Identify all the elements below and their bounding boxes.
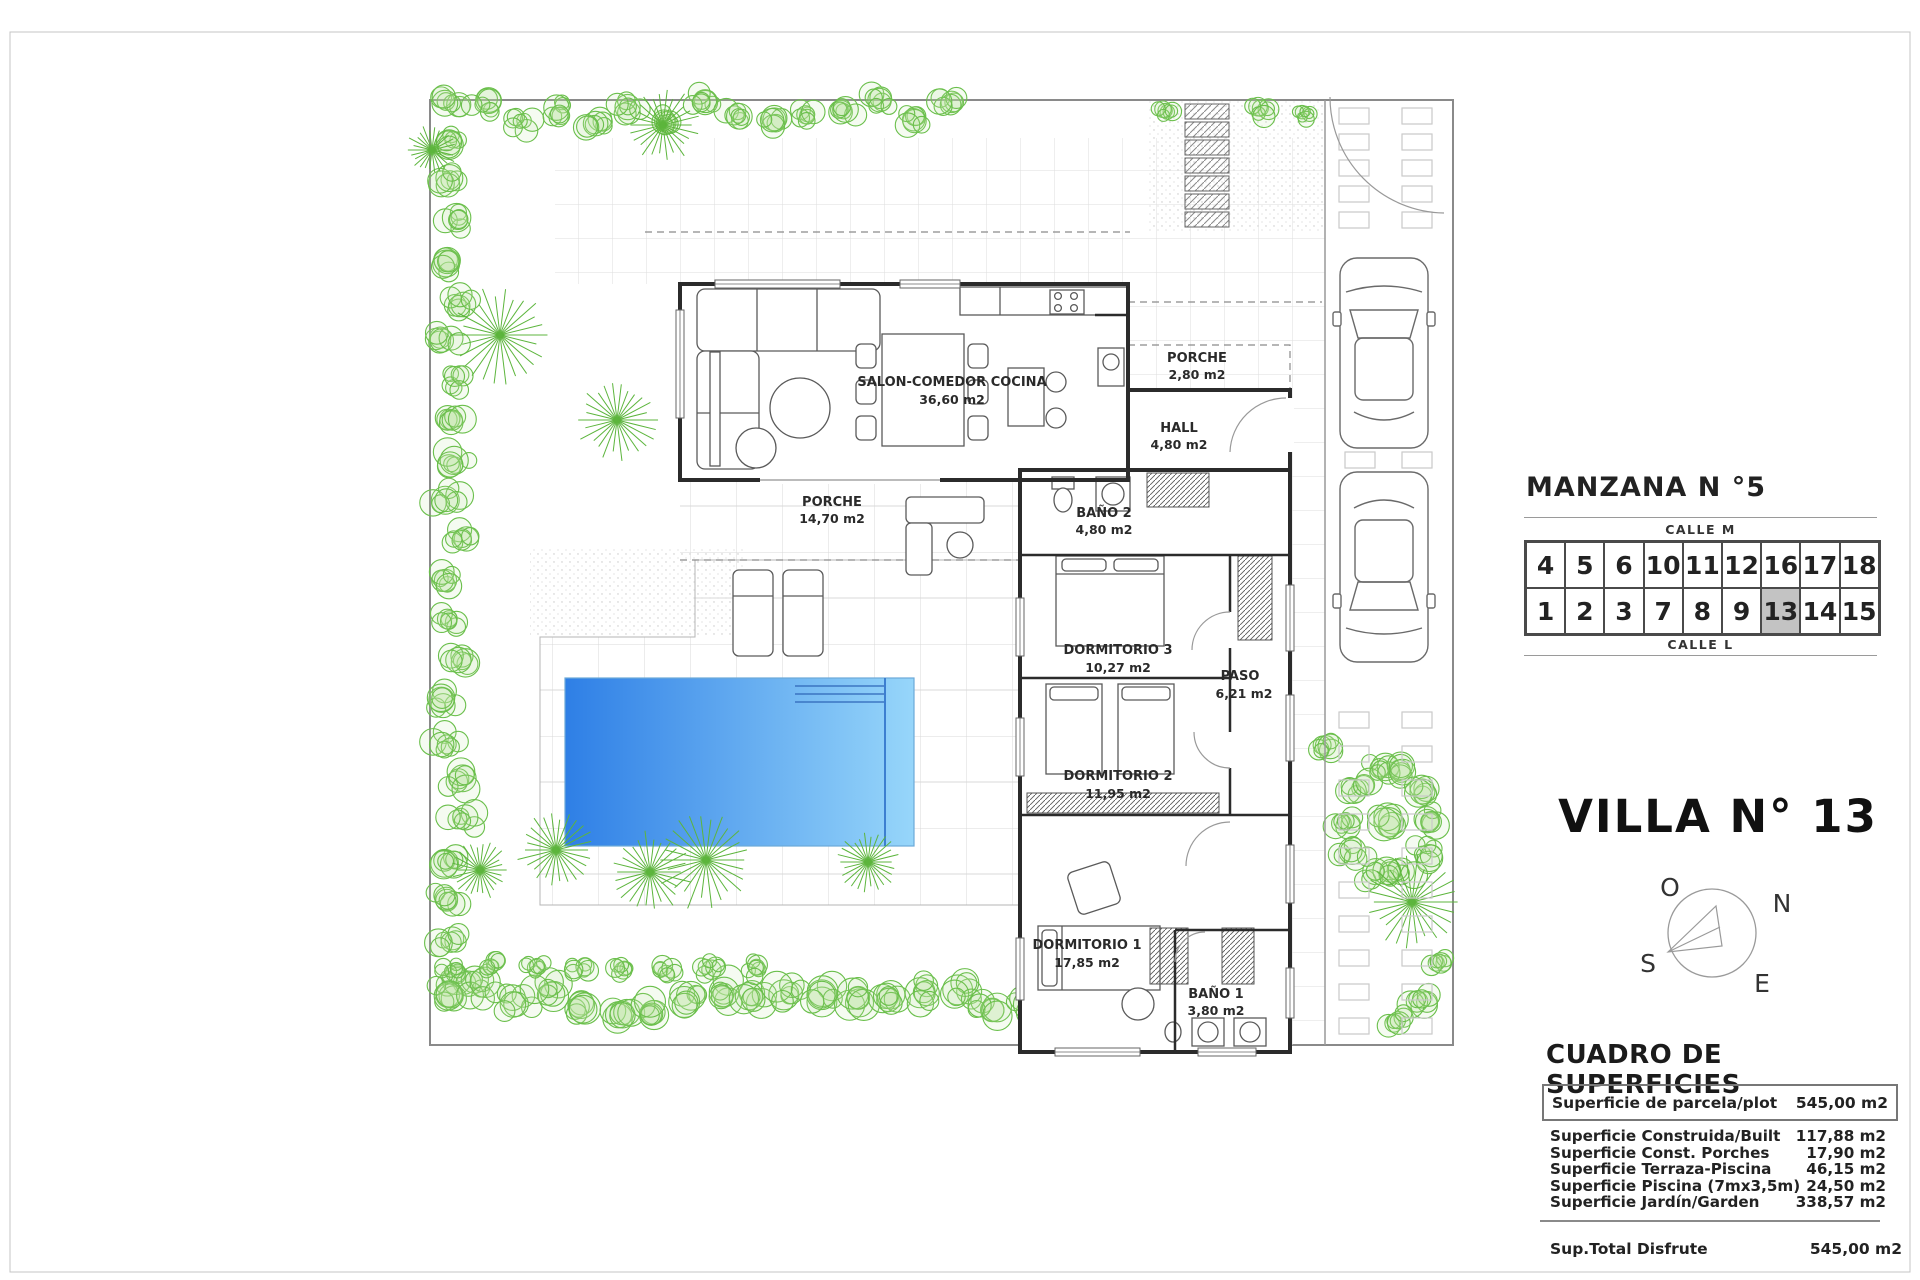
manzana-title: MANZANA N °5	[1526, 472, 1886, 503]
manzana-cell-top: 10	[1644, 542, 1683, 588]
compass-south-label: S	[1640, 949, 1656, 978]
divider-line	[1524, 517, 1877, 518]
room-area-dormitorio-1: 17,85 m2	[1054, 955, 1120, 970]
manzana-cell-top: 6	[1604, 542, 1643, 588]
manzana-cell-bottom: 14	[1800, 588, 1839, 634]
surface-row: Superficie Construida/Built 117,88 m2	[1542, 1128, 1894, 1145]
surface-row-label: Superficie Jardín/Garden	[1550, 1194, 1759, 1211]
room-label-bano-2: BAÑO 2	[1076, 505, 1131, 521]
surface-row-label: Superficie Piscina (7mx3,5m)	[1550, 1178, 1800, 1195]
room-label-hall: HALL	[1160, 421, 1198, 436]
room-area-dormitorio-2: 11,95 m2	[1085, 786, 1151, 801]
room-area-porche-1: 14,70 m2	[799, 511, 865, 526]
room-label-dormitorio-2: DORMITORIO 2	[1063, 769, 1172, 784]
room-label-dormitorio-1: DORMITORIO 1	[1032, 938, 1141, 953]
villa-title: VILLA N° 13	[1540, 790, 1896, 843]
manzana-cell-bottom: 1	[1526, 588, 1565, 634]
street-label-bottom: CALLE L	[1524, 637, 1877, 652]
manzana-cell-bottom: 7	[1644, 588, 1683, 634]
manzana-cell-top: 16	[1761, 542, 1800, 588]
surface-row: Superficie Terraza-Piscina 46,15 m2	[1542, 1161, 1894, 1178]
room-label-paso: PASO	[1221, 669, 1260, 684]
divider-line	[1524, 655, 1877, 656]
manzana-cell-top: 11	[1683, 542, 1722, 588]
room-area-hall: 4,80 m2	[1151, 437, 1208, 452]
room-area-dormitorio-3: 10,27 m2	[1085, 660, 1151, 675]
room-area-bano-2: 4,80 m2	[1076, 522, 1133, 537]
surface-plot-value: 545,00 m2	[1796, 1094, 1888, 1112]
room-label-salon: SALON-COMEDOR COCINA	[857, 375, 1046, 390]
compass-north-label: N	[1773, 889, 1792, 918]
manzana-cell-bottom: 3	[1604, 588, 1643, 634]
divider-line	[1540, 1220, 1880, 1222]
surface-total-value: 545,00 m2	[1810, 1240, 1902, 1258]
surface-plot-row: Superficie de parcela/plot 545,00 m2	[1542, 1084, 1898, 1121]
room-area-salon: 36,60 m2	[919, 392, 985, 407]
surface-row: Superficie Jardín/Garden 338,57 m2	[1542, 1194, 1894, 1211]
surface-row-value: 46,15 m2	[1806, 1161, 1886, 1178]
surface-row-value: 24,50 m2	[1806, 1178, 1886, 1195]
surface-row-value: 338,57 m2	[1796, 1194, 1886, 1211]
surface-rows: Superficie Construida/Built 117,88 m2 Su…	[1542, 1128, 1894, 1211]
surface-row-value: 117,88 m2	[1796, 1128, 1886, 1145]
surface-row-label: Superficie Const. Porches	[1550, 1145, 1769, 1162]
surface-plot-label: Superficie de parcela/plot	[1552, 1094, 1777, 1112]
manzana-cell-bottom: 13	[1761, 588, 1800, 634]
surface-row: Superficie Piscina (7mx3,5m) 24,50 m2	[1542, 1178, 1894, 1195]
surface-row-label: Superficie Terraza-Piscina	[1550, 1161, 1771, 1178]
room-label-porche-2: PORCHE	[1167, 351, 1227, 366]
surface-row: Superficie Const. Porches 17,90 m2	[1542, 1145, 1894, 1162]
compass: O N S E	[1640, 873, 1791, 998]
manzana-cell-bottom: 9	[1722, 588, 1761, 634]
room-label-dormitorio-3: DORMITORIO 3	[1063, 643, 1172, 658]
manzana-cell-bottom: 8	[1683, 588, 1722, 634]
street-label-top: CALLE M	[1524, 522, 1877, 537]
manzana-cell-top: 5	[1565, 542, 1604, 588]
manzana-plot-table: 4 5 6 10 11 12 16 17 18 1 2 3 7 8 9 13 1…	[1524, 540, 1881, 636]
room-label-bano-1: BAÑO 1	[1188, 986, 1243, 1002]
surface-row-value: 17,90 m2	[1806, 1145, 1886, 1162]
surface-total-row: Sup.Total Disfrute 545,00 m2	[1542, 1240, 1910, 1258]
manzana-cell-top: 18	[1840, 542, 1879, 588]
surface-row-label: Superficie Construida/Built	[1550, 1128, 1780, 1145]
compass-east-label: E	[1754, 969, 1770, 998]
room-area-porche-2: 2,80 m2	[1169, 367, 1226, 382]
manzana-cell-top: 4	[1526, 542, 1565, 588]
room-label-porche-1: PORCHE	[802, 495, 862, 510]
room-area-bano-1: 3,80 m2	[1188, 1003, 1245, 1018]
manzana-cell-top: 17	[1800, 542, 1839, 588]
manzana-cell-top: 12	[1722, 542, 1761, 588]
manzana-cell-bottom: 2	[1565, 588, 1604, 634]
compass-west-label: O	[1660, 873, 1680, 902]
surface-total-label: Sup.Total Disfrute	[1550, 1240, 1708, 1258]
floor-plan-sheet: SALON-COMEDOR COCINA 36,60 m2 PORCHE 2,8…	[0, 0, 1920, 1280]
manzana-cell-bottom: 15	[1840, 588, 1879, 634]
room-area-paso: 6,21 m2	[1216, 686, 1273, 701]
